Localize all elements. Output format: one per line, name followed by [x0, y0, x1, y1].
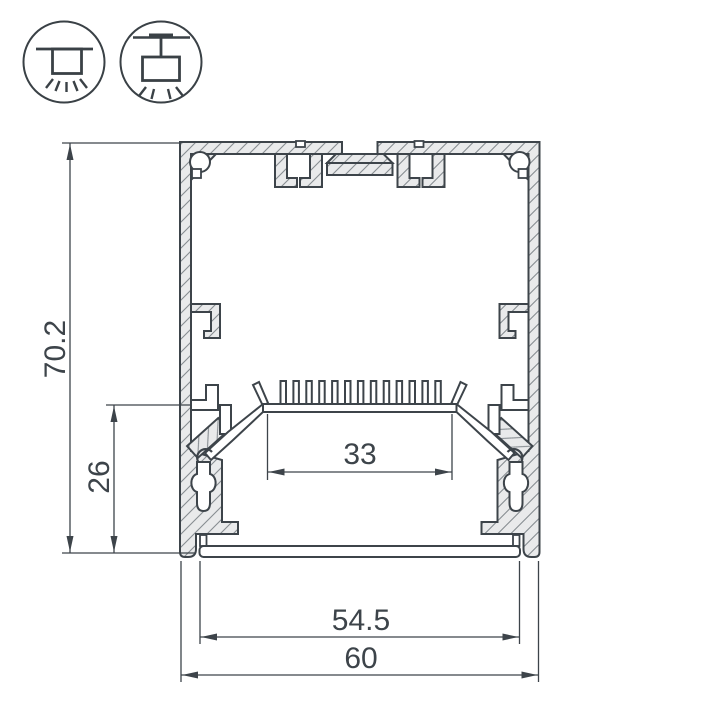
led-plate-heatsink — [253, 381, 467, 412]
drawing-page: 70.2 26 33 54.5 60 — [0, 0, 720, 720]
screw-port-notch — [192, 169, 201, 178]
top-slot-bridge — [327, 154, 393, 175]
led-plate — [263, 404, 457, 412]
mount-plate — [149, 34, 173, 39]
dim-overall-height-label: 70.2 — [39, 320, 72, 378]
dim-led-platform-width-label: 33 — [343, 438, 376, 471]
dim-inner-width-label: 54.5 — [332, 604, 390, 637]
technical-drawing-canvas: 70.2 26 33 54.5 60 — [0, 0, 720, 720]
dim-overall-width-label: 60 — [344, 642, 377, 675]
top-surface-notch — [296, 141, 305, 147]
dim-inner-height-label: 26 — [83, 460, 116, 493]
